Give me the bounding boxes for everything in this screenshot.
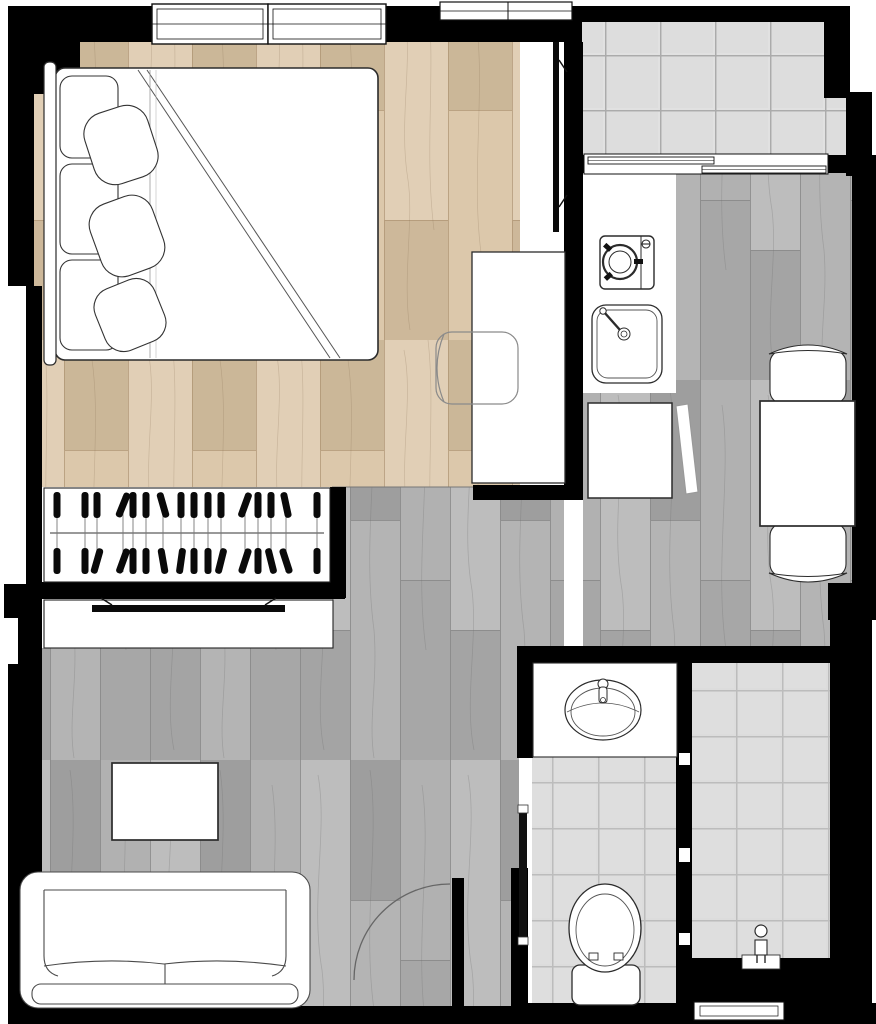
- hanger-garment-bottom: [255, 548, 262, 574]
- hanger-garment-top: [314, 492, 321, 518]
- living-tv-screen: [92, 605, 285, 612]
- wall-left-lower-step: [18, 618, 42, 666]
- bedroom-tv-screen: [553, 42, 559, 232]
- shower-niche: [742, 955, 780, 969]
- hanger-garment-top: [82, 492, 89, 518]
- balcony-floor: [582, 22, 826, 155]
- hanger-garment-top: [191, 492, 198, 518]
- kitchen-sink: [592, 305, 662, 383]
- wall-bedroom-kitchen: [564, 42, 583, 490]
- wall-bottom: [8, 1006, 532, 1024]
- wall-toilet-shower-divider: [676, 663, 692, 1008]
- pocket-door-cap-top: [518, 805, 528, 813]
- tv-console-area: [44, 598, 333, 648]
- bedroom-window-left: [152, 4, 268, 44]
- wall-balcony-divider-left: [564, 155, 586, 173]
- wall-top-right-corner: [824, 6, 850, 98]
- hanger-garment-top: [218, 492, 225, 518]
- hanger-garment-top: [205, 492, 212, 518]
- toilet-bowl: [569, 884, 641, 972]
- dining-nook: [760, 345, 855, 582]
- hanger-garment-top: [94, 492, 101, 518]
- wall-balcony-top: [582, 6, 850, 22]
- pocket-door-cap-bottom: [518, 937, 528, 945]
- shower-room-floor: [692, 663, 830, 963]
- hanger-garment-bottom: [54, 548, 61, 574]
- wall-under-desk: [473, 485, 583, 500]
- sofa-base: [32, 984, 298, 1004]
- bathroom-pocket-door: [518, 805, 528, 945]
- shower-mixer-head: [755, 925, 767, 937]
- hanger-garment-top: [255, 492, 262, 518]
- hanger-garment-top: [54, 492, 61, 518]
- tv-wall-window: [440, 2, 572, 20]
- wall-balcony-divider-right: [826, 155, 876, 173]
- balcony-sliding-door: [584, 154, 828, 174]
- hanger-garment-bottom: [191, 548, 198, 574]
- vanity-counter: [533, 663, 677, 757]
- floor-plan-drawing: [0, 0, 876, 1024]
- hanger-garment-bottom: [314, 548, 321, 574]
- dining-chair-south: [769, 523, 847, 582]
- hanger-garment-bottom: [205, 548, 212, 574]
- shower-window: [694, 1002, 784, 1020]
- pocket-door-panel: [519, 810, 527, 940]
- refrigerator: [588, 403, 672, 498]
- coffee-table: [112, 763, 218, 840]
- walk-in-closet: [44, 488, 330, 582]
- floor-plan-page: [0, 0, 876, 1024]
- wall-closet-bottom: [26, 582, 345, 599]
- shower-mixer-body: [755, 940, 767, 955]
- wall-left-mid: [26, 286, 42, 586]
- wall-bathroom-top: [517, 646, 847, 663]
- wall-right-dining-block: [828, 583, 876, 620]
- wall-closet-right: [330, 487, 346, 598]
- hanger-garment-top: [178, 492, 185, 518]
- wall-entry-spur: [452, 878, 464, 1008]
- hanger-garment-bottom: [82, 548, 89, 574]
- hanger-garment-bottom: [143, 548, 150, 574]
- hanger-garment-top: [130, 492, 137, 518]
- hanger-garment-bottom: [130, 548, 137, 574]
- dining-table: [760, 401, 855, 526]
- glass-joint-3: [679, 933, 690, 945]
- glass-joint-2: [679, 848, 690, 862]
- toilet-hinge: [614, 953, 623, 960]
- sofa: [20, 872, 310, 1008]
- wall-left-upper: [8, 42, 34, 286]
- headboard: [44, 62, 56, 365]
- dining-chair-north: [769, 345, 847, 404]
- vanity: [533, 663, 677, 757]
- toilet-hinge: [589, 953, 598, 960]
- hanger-garment-top: [268, 492, 275, 518]
- glass-joint-1: [679, 753, 690, 765]
- hanger-garment-top: [143, 492, 150, 518]
- wall-bathroom-left-upper: [517, 646, 533, 758]
- washing-machine: [600, 236, 654, 289]
- hallway-floor: [332, 487, 564, 648]
- bedroom-window-right: [268, 4, 386, 44]
- toilet: [569, 884, 641, 1005]
- wall-bathroom-right: [830, 620, 872, 1012]
